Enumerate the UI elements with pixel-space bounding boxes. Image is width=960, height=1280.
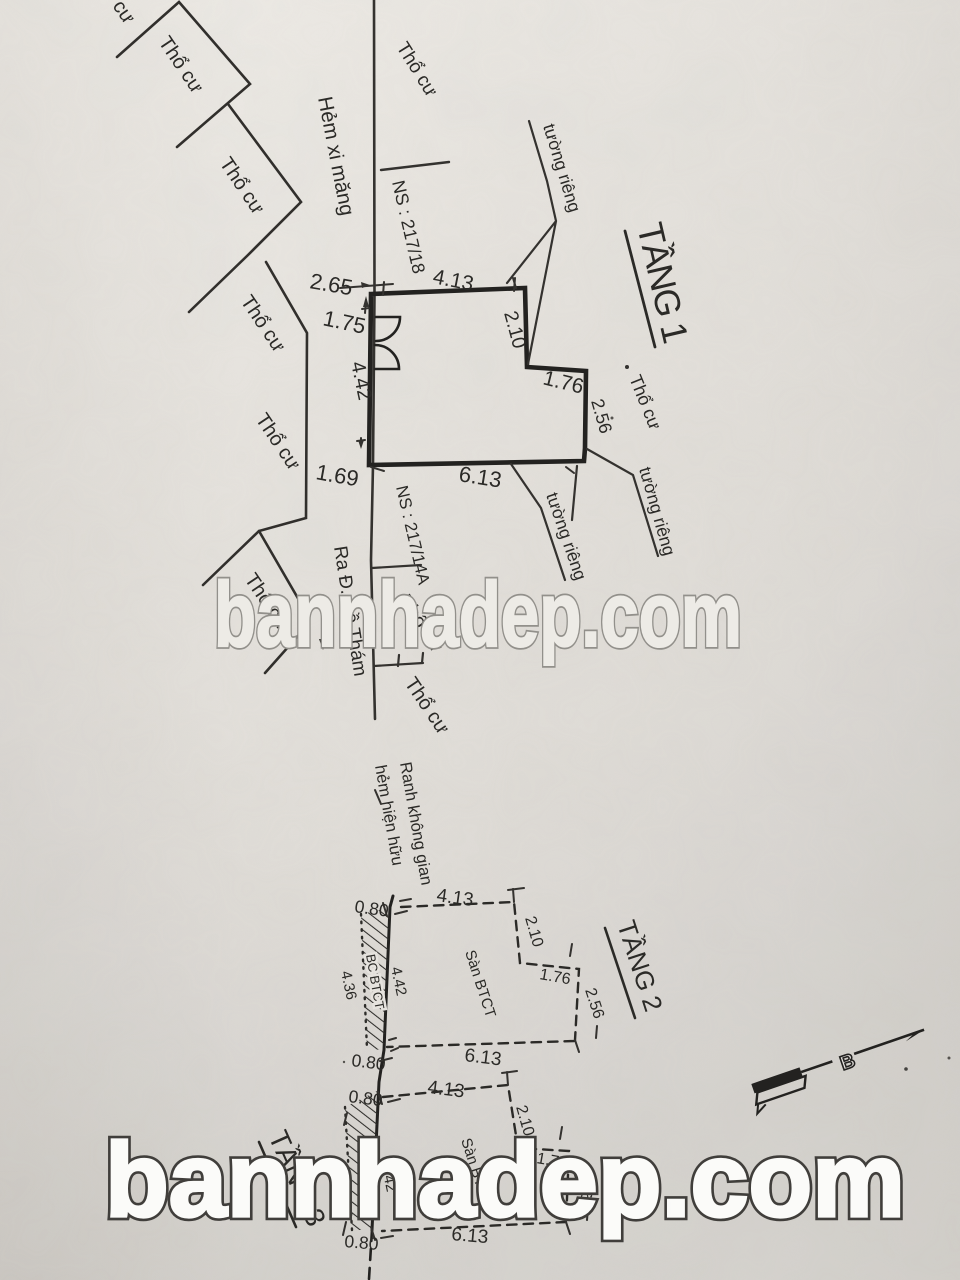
svg-text:0.80: 0.80 xyxy=(351,1050,388,1074)
svg-text:4.13: 4.13 xyxy=(426,1077,465,1102)
svg-text:bannhadep.com: bannhadep.com xyxy=(105,1122,905,1239)
svg-text:bannhadep.com: bannhadep.com xyxy=(214,564,742,666)
svg-text:0.80: 0.80 xyxy=(348,1086,385,1110)
svg-text:6.13: 6.13 xyxy=(463,1045,502,1070)
